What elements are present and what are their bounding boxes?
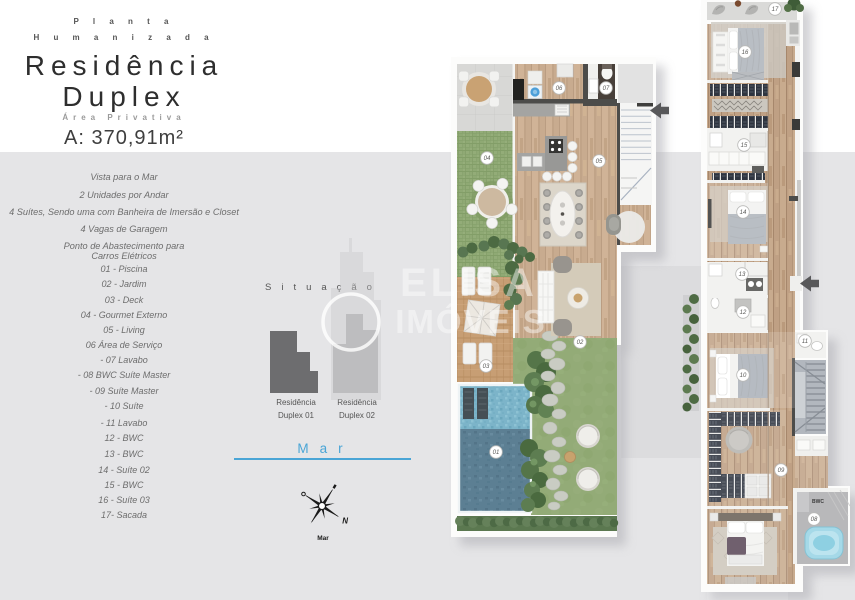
svg-text:09: 09 [778,468,785,474]
svg-text:05: 05 [596,159,603,165]
svg-text:11: 11 [802,339,808,345]
svg-text:07: 07 [603,86,610,92]
svg-text:12: 12 [740,310,747,316]
svg-text:14: 14 [740,210,747,216]
svg-text:06: 06 [556,86,563,92]
svg-text:N: N [342,517,348,526]
svg-text:IMÓVEIS: IMÓVEIS [395,303,547,340]
svg-text:03: 03 [483,364,490,370]
svg-text:04: 04 [484,156,491,162]
svg-text:16: 16 [742,50,749,56]
svg-text:01: 01 [493,450,500,456]
svg-text:13: 13 [739,272,746,278]
svg-text:17: 17 [772,7,779,13]
svg-text:10: 10 [740,373,747,379]
svg-text:08: 08 [811,517,818,523]
svg-text:02: 02 [577,340,584,346]
svg-text:ELISA: ELISA [400,261,538,305]
svg-text:BWC: BWC [812,499,824,505]
svg-text:15: 15 [741,143,748,149]
